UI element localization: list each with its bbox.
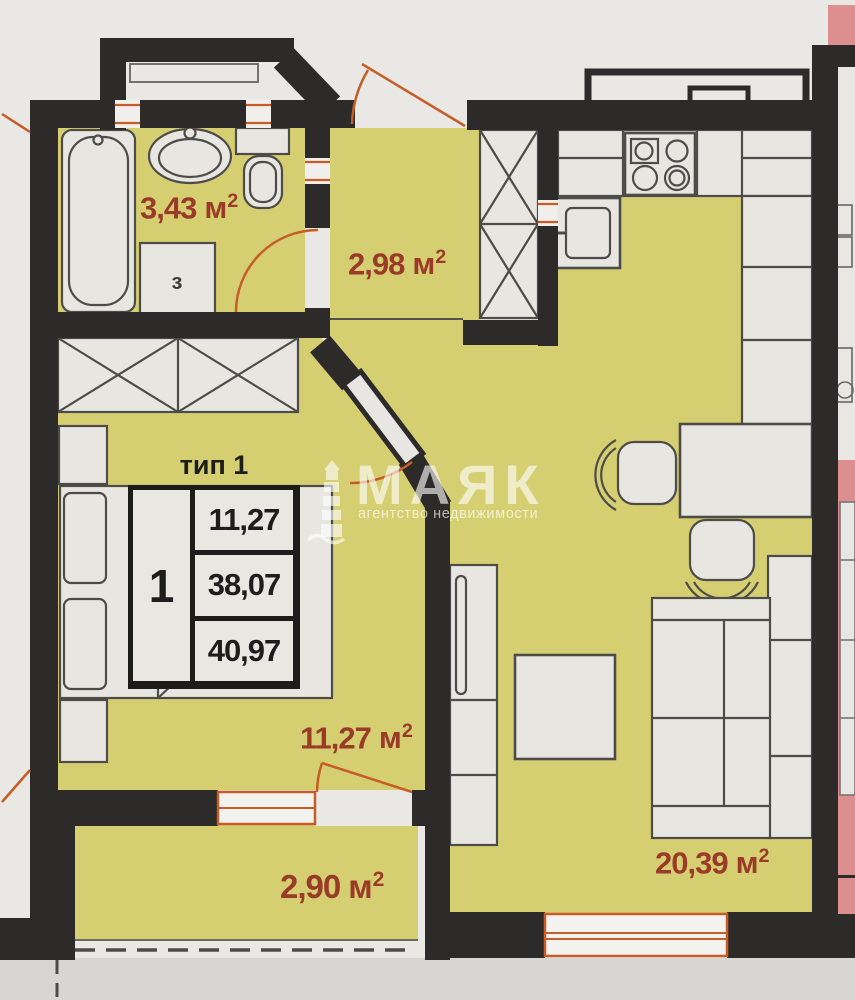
- bedroom-wardrobe: [58, 338, 298, 412]
- area-value: 20,39: [655, 845, 728, 880]
- room-label-bathroom: 3,43м2: [140, 190, 237, 226]
- pillow: [64, 493, 106, 583]
- bathroom-sink: [149, 128, 231, 184]
- sofa: [652, 556, 812, 838]
- area-value: 2,98: [348, 246, 404, 281]
- hall-wardrobe: [480, 130, 538, 318]
- area-sup: 2: [759, 845, 769, 867]
- living-room-window: [545, 914, 727, 956]
- vent-slot: [246, 100, 271, 128]
- bathroom-door-opening: [305, 228, 330, 308]
- nightstand: [59, 426, 107, 484]
- vent-slot: [538, 200, 558, 226]
- paper-bottom-strip: [0, 958, 855, 1000]
- room-label-living-room: 20,39м2: [655, 845, 769, 881]
- area-value: 2,90: [280, 868, 340, 905]
- apartment-type-stamp: 1 11,27 38,07 40,97: [128, 485, 300, 689]
- balcony-door-opening: [315, 790, 412, 826]
- area-unit: м: [412, 246, 434, 281]
- tv-stand: [450, 565, 497, 845]
- bedroom-window: [218, 792, 315, 824]
- area-unit: м: [348, 868, 371, 905]
- area-sup: 2: [402, 720, 412, 742]
- room-label-bedroom: 11,27м2: [300, 720, 412, 756]
- vent-slot: [305, 158, 330, 184]
- stove: [625, 133, 695, 195]
- area-value: 3,43: [140, 190, 196, 225]
- area-unit: м: [379, 720, 401, 755]
- floor-plan-screenshot: з: [0, 0, 855, 1000]
- stamp-living-area: 11,27: [195, 490, 293, 555]
- adjacent-apartment-corner: [838, 878, 855, 914]
- toilet: [236, 128, 289, 208]
- loggia-outline: [588, 72, 806, 104]
- vent-slot: [115, 100, 140, 128]
- pillow: [64, 599, 106, 689]
- room-label-balcony: 2,90м2: [280, 868, 383, 906]
- nightstand: [60, 700, 107, 762]
- stamp-type-title: тип 1: [128, 450, 300, 481]
- shaft-niche-wall: [100, 38, 294, 62]
- tv: [456, 576, 466, 694]
- area-sup: 2: [227, 190, 237, 212]
- area-sup: 2: [373, 868, 384, 891]
- area-unit: м: [204, 190, 226, 225]
- stamp-apartment-area: 38,07: [195, 555, 293, 620]
- dining-table: [680, 424, 812, 517]
- washing-machine-label: з: [172, 269, 183, 294]
- stamp-total-area: 40,97: [195, 621, 293, 681]
- neighbor-door-line: [2, 770, 30, 802]
- coffee-table: [515, 655, 615, 759]
- shaft-niche-detail: [130, 64, 258, 82]
- washing-machine: з: [140, 243, 215, 317]
- stamp-areas: 11,27 38,07 40,97: [195, 490, 293, 681]
- stamp-rooms-count: 1: [133, 490, 195, 681]
- floor-hall: [330, 128, 480, 320]
- neighbor-door-line: [2, 114, 30, 132]
- area-sup: 2: [435, 246, 445, 268]
- bathtub: [62, 130, 135, 312]
- room-label-hall: 2,98м2: [348, 246, 445, 282]
- entrance-opening: [355, 100, 467, 128]
- area-value: 11,27: [300, 720, 371, 755]
- area-unit: м: [736, 845, 758, 880]
